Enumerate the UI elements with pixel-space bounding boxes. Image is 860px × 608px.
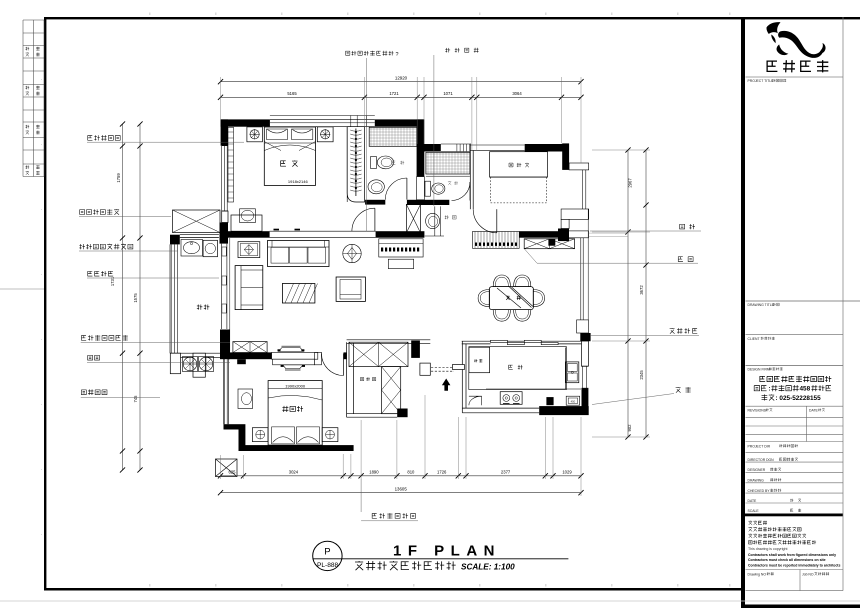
svg-text:3064: 3064 [512,91,522,96]
svg-text:PROJECT DIR: PROJECT DIR [748,445,771,449]
svg-text:1726: 1726 [437,470,447,475]
svg-text:I: I [730,12,731,16]
svg-text:DATE: DATE [809,409,819,413]
svg-text:DRAWING TITLE: DRAWING TITLE [748,303,775,307]
svg-text:I: I [546,12,547,16]
svg-text:Contractors must be reported i: Contractors must be reported immediately… [748,564,840,568]
svg-text:I: I [730,584,731,588]
svg-text:1071: 1071 [443,91,453,96]
svg-text:I: I [678,12,679,16]
svg-text:745: 745 [133,395,138,403]
svg-text:1721: 1721 [389,91,399,96]
svg-text:I: I [612,12,613,16]
svg-text:458: 458 [800,386,811,393]
svg-text:DESIGNER: DESIGNER [748,468,766,472]
svg-text:-: - [41,402,42,406]
svg-text:SCALE: SCALE [748,509,760,513]
svg-text:DESIGN FIRM: DESIGN FIRM [748,368,770,372]
svg-text:DATE: DATE [748,499,758,503]
svg-text:450: 450 [571,399,576,403]
svg-text:2967: 2967 [628,178,633,188]
svg-text:-: - [41,467,42,471]
svg-text:I: I [612,584,613,588]
svg-text:Contractors shall work from fi: Contractors shall work from figured dime… [748,553,836,557]
svg-text:I: I [546,584,547,588]
svg-text:DRAWING: DRAWING [748,479,765,483]
svg-text:CLIENT: CLIENT [748,337,760,341]
svg-text:I: I [216,12,217,16]
svg-text:1759: 1759 [116,173,121,183]
svg-text:1731: 1731 [110,276,115,286]
svg-text:-: - [41,532,42,536]
svg-text:1990x2000: 1990x2000 [285,383,306,388]
svg-text:810: 810 [407,470,415,475]
svg-text:-: - [41,77,42,81]
svg-text:I: I [678,584,679,588]
svg-text:13605: 13605 [395,486,408,491]
svg-text:DIRECTOR DGN: DIRECTOR DGN [748,458,775,462]
svg-text:Contractors must check all dim: Contractors must check all dimensions on… [748,558,826,562]
svg-text:I: I [150,584,151,588]
svg-text:I: I [414,584,415,588]
svg-text:REVISIONS: REVISIONS [748,409,767,413]
svg-text:SCALE: 1:100: SCALE: 1:100 [461,563,515,572]
svg-text:Job NO: Job NO [802,573,814,577]
svg-text:I: I [414,12,415,16]
svg-text:: 025-52228155: : 025-52228155 [776,395,822,402]
svg-text:-: - [41,272,42,276]
svg-text:-: - [41,337,42,341]
svg-text:PL-888: PL-888 [317,562,339,569]
svg-text:I: I [282,584,283,588]
svg-text:Drawing NO: Drawing NO [748,573,767,577]
svg-text:5165: 5165 [287,91,297,96]
svg-text:PROJECT TITLE: PROJECT TITLE [748,79,775,83]
svg-text:-: - [41,207,42,211]
svg-text:12920: 12920 [395,75,408,80]
svg-text:1575: 1575 [133,293,138,303]
svg-text:I: I [348,12,349,16]
svg-text:2345: 2345 [639,370,644,380]
svg-text:1029: 1029 [562,470,572,475]
svg-text:This drawing is copyright: This drawing is copyright [748,547,788,551]
svg-text:I: I [480,584,481,588]
svg-text:I: I [348,584,349,588]
svg-text:P: P [324,547,330,558]
svg-text:625: 625 [229,470,237,475]
svg-text:-: - [41,142,42,146]
svg-text:1F PLAN: 1F PLAN [393,543,501,560]
svg-text:I: I [480,12,481,16]
svg-text:902: 902 [627,424,632,432]
svg-text:I: I [216,584,217,588]
svg-text::: : [769,386,771,393]
svg-text:?: ? [396,52,399,58]
svg-text:I: I [150,12,151,16]
svg-text:CHECKED BY: CHECKED BY [748,489,771,493]
svg-text:3672: 3672 [639,285,644,295]
svg-text:1890: 1890 [369,470,379,475]
svg-text:1918x2146: 1918x2146 [288,179,309,184]
svg-text:3024: 3024 [289,470,299,475]
svg-text:I: I [282,12,283,16]
svg-text:2377: 2377 [501,470,511,475]
